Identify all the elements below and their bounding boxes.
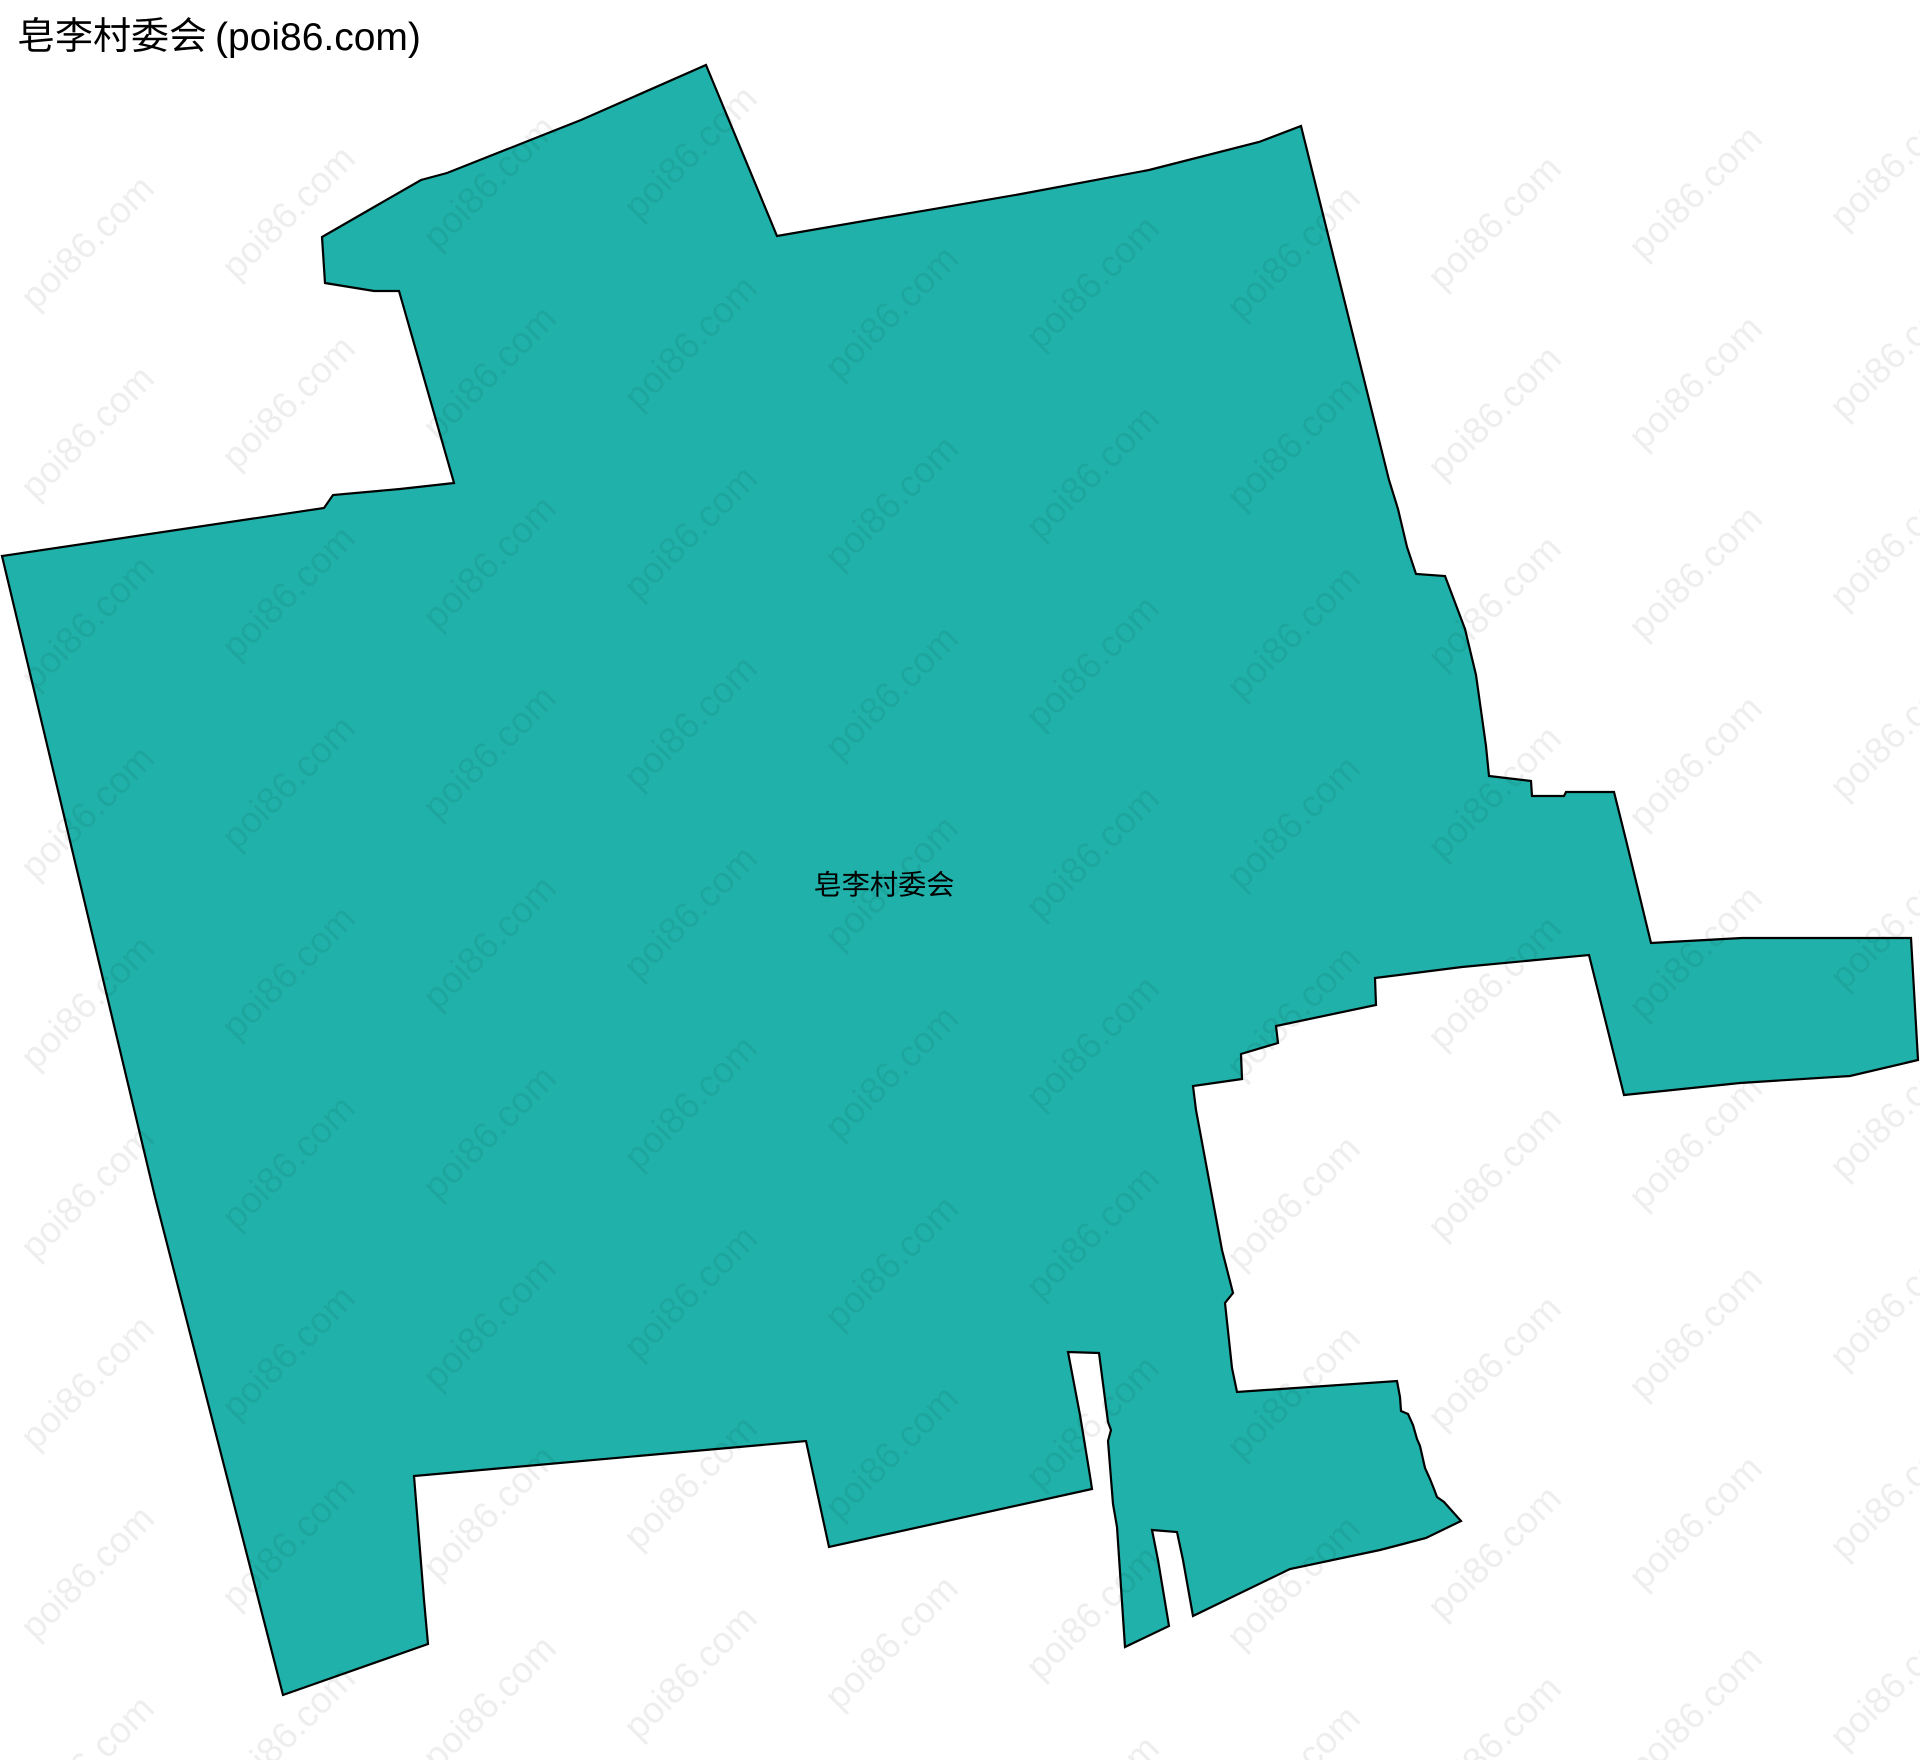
svg-text:poi86.com: poi86.com: [1620, 307, 1770, 457]
svg-text:poi86.com: poi86.com: [615, 1597, 765, 1747]
svg-text:poi86.com: poi86.com: [1821, 87, 1920, 237]
svg-text:poi86.com: poi86.com: [1218, 1697, 1368, 1760]
svg-text:poi86.com: poi86.com: [1821, 1227, 1920, 1377]
svg-text:poi86.com: poi86.com: [12, 1307, 162, 1457]
svg-text:poi86.com: poi86.com: [12, 1497, 162, 1647]
svg-text:poi86.com: poi86.com: [1218, 1127, 1368, 1277]
svg-text:poi86.com: poi86.com: [12, 167, 162, 317]
svg-text:poi86.com: poi86.com: [12, 1117, 162, 1267]
svg-text:poi86.com: poi86.com: [1419, 1667, 1569, 1760]
svg-text:poi86.com: poi86.com: [1620, 1257, 1770, 1407]
svg-text:poi86.com: poi86.com: [1821, 467, 1920, 617]
svg-text:poi86.com: poi86.com: [213, 327, 363, 477]
svg-text:poi86.com: poi86.com: [1821, 1607, 1920, 1757]
svg-text:poi86.com: poi86.com: [1620, 117, 1770, 267]
svg-text:poi86.com: poi86.com: [816, 1567, 966, 1717]
svg-text:poi86.com: poi86.com: [12, 1687, 162, 1760]
svg-text:poi86.com: poi86.com: [1620, 687, 1770, 837]
svg-text:poi86.com: poi86.com: [1419, 1097, 1569, 1247]
svg-text:poi86.com: poi86.com: [414, 1627, 564, 1760]
svg-text:poi86.com: poi86.com: [1419, 147, 1569, 297]
svg-text:poi86.com: poi86.com: [1821, 277, 1920, 427]
svg-text:poi86.com: poi86.com: [1419, 337, 1569, 487]
svg-text:(poi86.com): (poi86.com): [215, 16, 421, 59]
svg-text:poi86.com: poi86.com: [1620, 1447, 1770, 1597]
svg-text:poi86.com: poi86.com: [12, 357, 162, 507]
svg-text:poi86.com: poi86.com: [1620, 497, 1770, 647]
svg-text:poi86.com: poi86.com: [1419, 1287, 1569, 1437]
svg-text:poi86.com: poi86.com: [1821, 657, 1920, 807]
svg-text:poi86.com: poi86.com: [1620, 1637, 1770, 1760]
svg-text:poi86.com: poi86.com: [1821, 1417, 1920, 1567]
svg-text:poi86.com: poi86.com: [1017, 1727, 1167, 1760]
